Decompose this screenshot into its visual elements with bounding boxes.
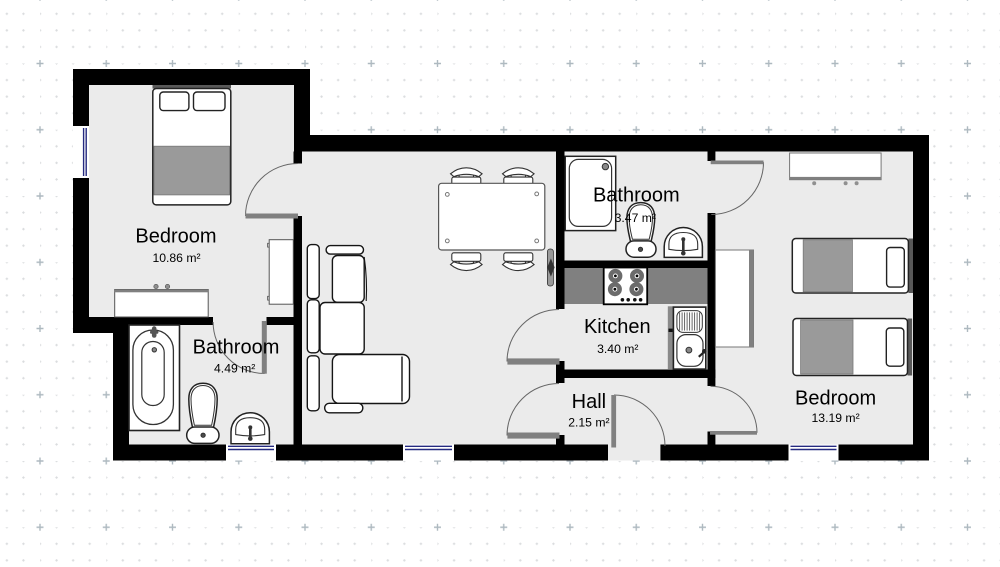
svg-text:Bathroom: Bathroom bbox=[593, 184, 680, 206]
svg-text:Bedroom: Bedroom bbox=[795, 387, 876, 409]
svg-text:2.15 m²: 2.15 m² bbox=[568, 415, 609, 429]
svg-text:4.49 m²: 4.49 m² bbox=[214, 362, 255, 376]
svg-text:10.86 m²: 10.86 m² bbox=[152, 251, 200, 265]
svg-text:3.47 m²: 3.47 m² bbox=[615, 211, 656, 225]
svg-text:Kitchen: Kitchen bbox=[584, 316, 651, 338]
svg-text:Bathroom: Bathroom bbox=[193, 337, 280, 359]
svg-text:3.40 m²: 3.40 m² bbox=[597, 342, 638, 356]
svg-text:Hall: Hall bbox=[572, 391, 606, 413]
svg-text:13.19 m²: 13.19 m² bbox=[812, 411, 860, 425]
svg-text:Bedroom: Bedroom bbox=[135, 226, 216, 248]
